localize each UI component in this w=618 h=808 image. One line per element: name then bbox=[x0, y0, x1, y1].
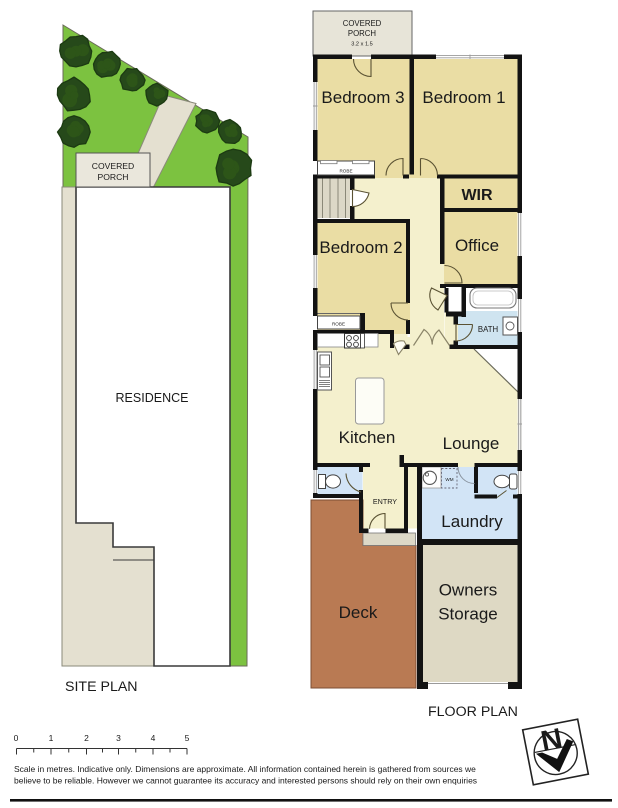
svg-text:Kitchen: Kitchen bbox=[339, 428, 396, 447]
svg-text:3.2 x 1.5: 3.2 x 1.5 bbox=[351, 42, 372, 48]
svg-text:COVERED: COVERED bbox=[92, 161, 135, 171]
svg-text:WM: WM bbox=[445, 477, 453, 482]
svg-text:1: 1 bbox=[49, 733, 54, 743]
svg-text:Laundry: Laundry bbox=[441, 512, 503, 531]
svg-text:3: 3 bbox=[116, 733, 121, 743]
svg-text:PORCH: PORCH bbox=[348, 29, 376, 38]
svg-text:0: 0 bbox=[14, 733, 19, 743]
svg-text:Bedroom 1: Bedroom 1 bbox=[422, 88, 505, 107]
svg-text:PORCH: PORCH bbox=[97, 172, 128, 182]
svg-text:WIR: WIR bbox=[461, 187, 493, 204]
svg-text:Deck: Deck bbox=[339, 603, 378, 622]
svg-text:believe to be reliable. Howeve: believe to be reliable. However we canno… bbox=[14, 776, 477, 786]
svg-text:5: 5 bbox=[185, 733, 190, 743]
svg-text:SITE PLAN: SITE PLAN bbox=[65, 679, 138, 695]
svg-text:Lounge: Lounge bbox=[443, 434, 500, 453]
svg-text:2: 2 bbox=[84, 733, 89, 743]
svg-text:Bedroom 3: Bedroom 3 bbox=[321, 88, 404, 107]
svg-text:COVERED: COVERED bbox=[343, 19, 382, 28]
svg-text:Owners: Owners bbox=[439, 581, 498, 600]
svg-text:ROBE: ROBE bbox=[332, 322, 345, 327]
svg-text:ROBE: ROBE bbox=[339, 169, 352, 174]
svg-text:FLOOR PLAN: FLOOR PLAN bbox=[428, 704, 518, 720]
svg-text:BATH: BATH bbox=[478, 325, 498, 334]
svg-text:RESIDENCE: RESIDENCE bbox=[116, 391, 189, 405]
svg-text:Office: Office bbox=[455, 236, 499, 255]
svg-text:Storage: Storage bbox=[438, 605, 498, 624]
svg-text:Bedroom 2: Bedroom 2 bbox=[319, 238, 402, 257]
svg-text:4: 4 bbox=[151, 733, 156, 743]
svg-text:ENTRY: ENTRY bbox=[373, 497, 397, 506]
svg-text:Scale in metres. Indicative on: Scale in metres. Indicative only. Dimens… bbox=[14, 764, 476, 774]
